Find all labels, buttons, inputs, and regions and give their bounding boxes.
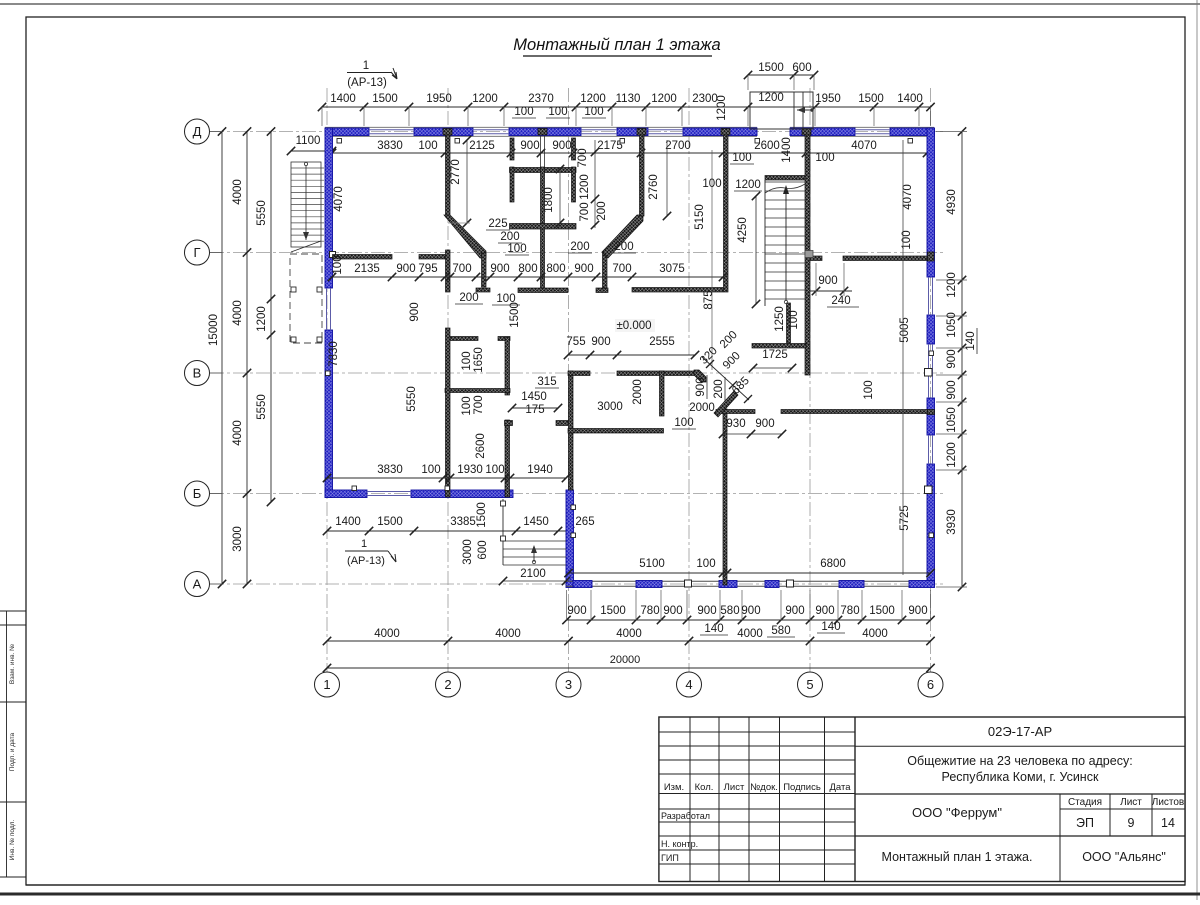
svg-text:900: 900: [785, 605, 804, 617]
svg-text:Общежитие на 23 человека по ад: Общежитие на 23 человека по адресу:: [907, 754, 1132, 768]
svg-text:240: 240: [831, 295, 850, 307]
svg-text:3000: 3000: [597, 401, 623, 413]
svg-text:100: 100: [788, 310, 800, 329]
svg-text:4930: 4930: [946, 189, 958, 215]
svg-text:800: 800: [546, 263, 565, 275]
svg-text:1200: 1200: [651, 93, 677, 105]
svg-text:900: 900: [695, 377, 707, 396]
svg-text:600: 600: [477, 540, 489, 559]
svg-text:Лист: Лист: [1120, 797, 1142, 808]
svg-text:Листов: Листов: [1152, 797, 1185, 808]
svg-text:1400: 1400: [330, 93, 356, 105]
svg-text:100: 100: [674, 417, 693, 429]
svg-text:4000: 4000: [232, 179, 244, 205]
svg-text:1400: 1400: [335, 516, 361, 528]
svg-text:А: А: [193, 577, 202, 592]
svg-text:3000: 3000: [462, 539, 474, 565]
svg-text:(АР-13): (АР-13): [347, 77, 387, 89]
svg-text:1200: 1200: [716, 95, 728, 121]
svg-text:700: 700: [579, 202, 591, 221]
svg-text:4000: 4000: [232, 300, 244, 326]
svg-text:1200: 1200: [946, 442, 958, 468]
svg-text:900: 900: [741, 605, 760, 617]
svg-text:100: 100: [418, 140, 437, 152]
svg-text:100: 100: [507, 243, 526, 255]
svg-text:1450: 1450: [521, 391, 547, 403]
svg-text:930: 930: [726, 418, 745, 430]
svg-text:1500: 1500: [509, 302, 521, 328]
svg-text:100: 100: [485, 464, 504, 476]
svg-text:1950: 1950: [815, 93, 841, 105]
svg-text:795: 795: [418, 263, 437, 275]
svg-text:1400: 1400: [781, 137, 793, 163]
svg-text:900: 900: [520, 140, 539, 152]
svg-text:2100: 2100: [520, 568, 546, 580]
svg-text:Лист: Лист: [724, 782, 745, 793]
svg-text:100: 100: [732, 152, 751, 164]
svg-text:100: 100: [863, 380, 875, 399]
svg-text:200: 200: [596, 201, 608, 220]
svg-text:Г: Г: [193, 245, 200, 260]
svg-text:1940: 1940: [527, 464, 553, 476]
svg-text:Разработал: Разработал: [661, 811, 710, 821]
svg-text:100: 100: [461, 396, 473, 415]
svg-text:±0.000: ±0.000: [616, 320, 651, 332]
svg-text:1200: 1200: [758, 92, 784, 104]
svg-text:900: 900: [409, 302, 421, 321]
svg-text:4000: 4000: [495, 628, 521, 640]
svg-text:Монтажный план 1 этажа.: Монтажный план 1 этажа.: [882, 850, 1033, 864]
svg-text:4250: 4250: [737, 217, 749, 243]
svg-text:2770: 2770: [450, 159, 462, 185]
svg-text:1400: 1400: [897, 93, 923, 105]
svg-text:700: 700: [577, 148, 589, 167]
svg-text:1: 1: [361, 538, 367, 550]
svg-text:4000: 4000: [374, 628, 400, 640]
svg-text:100: 100: [332, 255, 344, 274]
svg-text:ООО "Альянс": ООО "Альянс": [1082, 850, 1166, 864]
svg-text:9: 9: [1128, 816, 1135, 830]
svg-text:1450: 1450: [523, 516, 549, 528]
svg-text:15000: 15000: [208, 314, 220, 346]
svg-text:100: 100: [702, 178, 721, 190]
svg-text:Инв. № подл.: Инв. № подл.: [9, 820, 16, 861]
svg-text:Подпись: Подпись: [783, 782, 821, 793]
svg-text:2175: 2175: [597, 140, 623, 152]
svg-text:1500: 1500: [600, 605, 626, 617]
svg-text:1725: 1725: [762, 349, 788, 361]
svg-text:4000: 4000: [862, 628, 888, 640]
svg-text:1500: 1500: [758, 62, 784, 74]
svg-text:100: 100: [696, 558, 715, 570]
svg-text:1950: 1950: [426, 93, 452, 105]
svg-text:3000: 3000: [232, 526, 244, 552]
svg-text:800: 800: [518, 263, 537, 275]
svg-text:175: 175: [525, 404, 544, 416]
svg-text:900: 900: [946, 349, 958, 368]
svg-text:200: 200: [614, 241, 633, 253]
svg-text:900: 900: [755, 418, 774, 430]
svg-text:Изм.: Изм.: [664, 782, 684, 793]
svg-text:1800: 1800: [543, 187, 555, 213]
svg-text:1500: 1500: [476, 502, 488, 528]
svg-text:2370: 2370: [528, 93, 554, 105]
svg-text:900: 900: [946, 380, 958, 399]
svg-text:3830: 3830: [377, 140, 403, 152]
svg-text:№док.: №док.: [750, 782, 778, 793]
svg-text:1200: 1200: [472, 93, 498, 105]
svg-text:1200: 1200: [946, 272, 958, 298]
svg-text:1200: 1200: [580, 93, 606, 105]
svg-text:1500: 1500: [377, 516, 403, 528]
svg-text:1250: 1250: [774, 306, 786, 332]
svg-text:4070: 4070: [333, 186, 345, 212]
svg-text:Подп. и дата: Подп. и дата: [9, 732, 16, 771]
svg-text:4000: 4000: [616, 628, 642, 640]
svg-text:5725: 5725: [899, 505, 911, 531]
svg-text:2000: 2000: [689, 402, 715, 414]
svg-text:1: 1: [323, 677, 330, 692]
svg-text:140: 140: [704, 623, 723, 635]
svg-text:225: 225: [488, 218, 507, 230]
svg-text:100: 100: [514, 106, 533, 118]
svg-text:100: 100: [584, 106, 603, 118]
svg-text:Монтажный план 1 этажа: Монтажный план 1 этажа: [513, 36, 720, 54]
svg-text:Дата: Дата: [829, 782, 851, 793]
svg-text:780: 780: [640, 605, 659, 617]
svg-text:20000: 20000: [610, 654, 641, 666]
svg-text:3: 3: [565, 677, 572, 692]
svg-text:1200: 1200: [256, 306, 268, 332]
svg-text:1050: 1050: [946, 407, 958, 433]
svg-text:900: 900: [697, 605, 716, 617]
svg-text:140: 140: [965, 331, 977, 350]
svg-text:2555: 2555: [649, 336, 675, 348]
svg-text:7830: 7830: [328, 341, 340, 367]
svg-text:1650: 1650: [473, 347, 485, 373]
svg-text:Д: Д: [193, 124, 202, 139]
svg-text:2: 2: [444, 677, 451, 692]
svg-text:700: 700: [473, 395, 485, 414]
svg-text:580: 580: [720, 605, 739, 617]
svg-text:ЭП: ЭП: [1076, 816, 1094, 830]
svg-text:580: 580: [771, 625, 790, 637]
svg-text:В: В: [193, 366, 202, 381]
svg-text:02Э-17-АР: 02Э-17-АР: [988, 724, 1052, 739]
svg-text:700: 700: [452, 263, 471, 275]
svg-text:5550: 5550: [256, 200, 268, 226]
svg-text:6800: 6800: [820, 558, 846, 570]
svg-text:900: 900: [663, 605, 682, 617]
svg-text:100: 100: [461, 351, 473, 370]
svg-text:900: 900: [908, 605, 927, 617]
svg-text:Стадия: Стадия: [1068, 797, 1102, 808]
svg-text:ООО "Феррум": ООО "Феррум": [912, 805, 1002, 820]
svg-text:1500: 1500: [372, 93, 398, 105]
svg-text:900: 900: [591, 336, 610, 348]
svg-text:2135: 2135: [354, 263, 380, 275]
svg-text:5550: 5550: [256, 394, 268, 420]
svg-text:900: 900: [818, 275, 837, 287]
svg-text:1500: 1500: [858, 93, 884, 105]
svg-text:4: 4: [685, 677, 692, 692]
svg-text:5: 5: [806, 677, 813, 692]
svg-text:3075: 3075: [659, 263, 685, 275]
svg-text:4000: 4000: [232, 420, 244, 446]
svg-text:14: 14: [1161, 816, 1175, 830]
svg-text:4000: 4000: [737, 628, 763, 640]
svg-text:3930: 3930: [946, 509, 958, 535]
svg-text:3385: 3385: [450, 516, 476, 528]
svg-text:900: 900: [815, 605, 834, 617]
svg-text:4070: 4070: [902, 184, 914, 210]
svg-text:2300: 2300: [692, 93, 718, 105]
svg-text:1200: 1200: [579, 174, 591, 200]
svg-text:Б: Б: [193, 486, 202, 501]
svg-text:200: 200: [713, 379, 725, 398]
svg-text:100: 100: [421, 464, 440, 476]
svg-text:2700: 2700: [665, 140, 691, 152]
svg-text:900: 900: [552, 140, 571, 152]
svg-text:900: 900: [567, 605, 586, 617]
svg-text:1050: 1050: [946, 312, 958, 338]
svg-text:5550: 5550: [406, 386, 418, 412]
svg-text:(АР-13): (АР-13): [347, 555, 385, 567]
svg-text:5005: 5005: [899, 317, 911, 343]
svg-text:3830: 3830: [377, 464, 403, 476]
svg-text:1100: 1100: [296, 135, 321, 147]
svg-text:780: 780: [840, 605, 859, 617]
svg-text:700: 700: [612, 263, 631, 275]
svg-text:Кол.: Кол.: [695, 782, 714, 793]
svg-text:900: 900: [396, 263, 415, 275]
svg-text:5150: 5150: [694, 204, 706, 230]
svg-text:1500: 1500: [869, 605, 895, 617]
svg-text:200: 200: [570, 241, 589, 253]
svg-text:200: 200: [459, 292, 478, 304]
svg-text:875: 875: [703, 290, 715, 309]
svg-text:1130: 1130: [616, 93, 641, 105]
svg-text:2125: 2125: [469, 140, 495, 152]
svg-text:755: 755: [566, 336, 585, 348]
svg-text:900: 900: [490, 263, 509, 275]
svg-text:2760: 2760: [648, 174, 660, 200]
svg-text:315: 315: [537, 376, 556, 388]
svg-text:Н. контр.: Н. контр.: [661, 839, 698, 849]
svg-text:600: 600: [792, 62, 811, 74]
svg-text:1200: 1200: [735, 179, 761, 191]
svg-text:900: 900: [574, 263, 593, 275]
svg-text:1: 1: [363, 60, 369, 72]
svg-text:Взам. инв. №: Взам. инв. №: [9, 644, 16, 684]
svg-text:2000: 2000: [632, 379, 644, 405]
svg-text:4070: 4070: [851, 140, 877, 152]
svg-text:1930: 1930: [457, 464, 483, 476]
svg-text:265: 265: [575, 516, 594, 528]
svg-text:5100: 5100: [639, 558, 665, 570]
svg-text:6: 6: [927, 677, 934, 692]
svg-text:140: 140: [821, 621, 840, 633]
svg-text:100: 100: [548, 106, 567, 118]
svg-text:2600: 2600: [475, 433, 487, 459]
svg-text:Республика Коми, г. Усинск: Республика Коми, г. Усинск: [942, 770, 1099, 784]
svg-text:100: 100: [815, 152, 834, 164]
svg-text:200: 200: [500, 231, 519, 243]
svg-text:ГИП: ГИП: [661, 853, 679, 863]
